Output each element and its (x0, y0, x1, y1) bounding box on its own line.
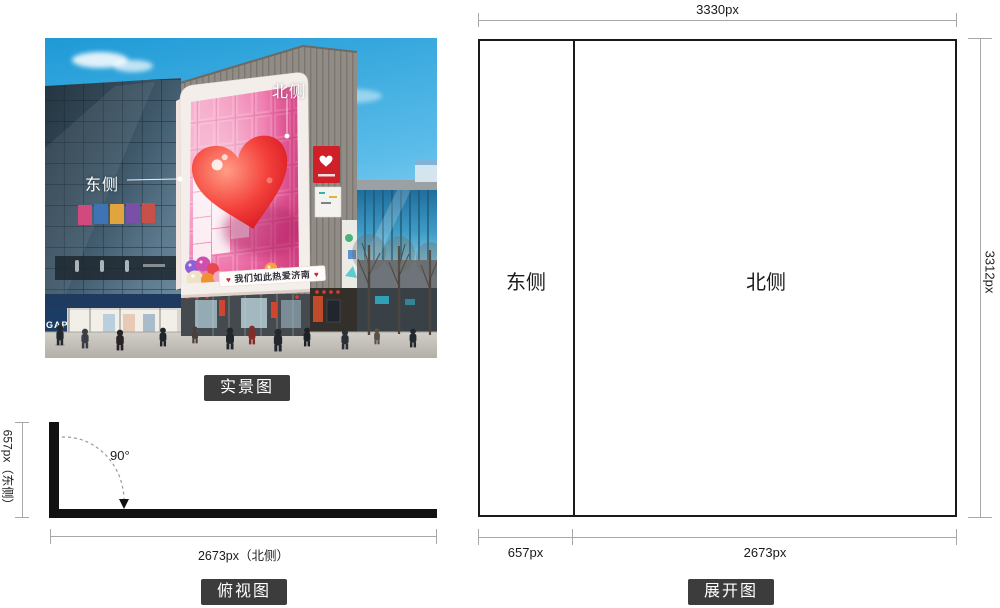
dim-tick (15, 422, 29, 423)
heart-icon: ♥ (226, 275, 232, 284)
dim-tick (956, 13, 957, 27)
unfold-east-label: 东侧 (478, 266, 574, 295)
dim-tick (968, 38, 992, 39)
heart-icon: ♥ (314, 270, 320, 279)
unfold-bottom-left-dim-label: 657px (478, 545, 573, 560)
arc-arrowhead (119, 499, 129, 509)
photo-caption: 实景图 (204, 375, 290, 401)
unfold-north-label: 北侧 (575, 266, 957, 295)
photo-east-label: 东侧 (85, 171, 119, 195)
dim-tick (50, 529, 51, 544)
topview-left-dim-line (22, 422, 23, 518)
dim-tick (436, 529, 437, 544)
unfold-top-dim-line (478, 20, 957, 21)
unfold-caption: 展开图 (688, 579, 774, 605)
tower-storefront (310, 288, 357, 334)
unfold-right-dim-line (980, 39, 981, 517)
topview-bottom-dim-label: 2673px（北侧） (50, 545, 437, 564)
glass-posters (78, 203, 155, 225)
tower-small-signs (315, 187, 341, 217)
dim-tick (956, 529, 957, 545)
north-pointer-dot (285, 134, 290, 139)
spec-sheet: GAP (0, 0, 1000, 608)
mannequin-band (55, 256, 181, 280)
shop-fascia (45, 294, 181, 308)
mall-storefront (181, 294, 310, 336)
topview-bottom-dim-line (50, 536, 437, 537)
unfold-right-dim-label: 3312px (983, 251, 998, 294)
unfold-top-dim-label: 3330px (478, 2, 957, 17)
angle-label: 90° (110, 448, 130, 463)
east-glass-building: GAP (45, 78, 181, 340)
dim-tick (15, 517, 29, 518)
dim-tick (478, 529, 479, 545)
unfold-bottom-right-dim-label: 2673px (573, 545, 957, 560)
dim-tick (572, 529, 573, 545)
dim-tick (478, 13, 479, 27)
angle-arc (55, 430, 140, 515)
topview-left-dim-label: 657px（东侧） (0, 430, 17, 511)
east-pointer-dot (178, 177, 183, 182)
site-photo: GAP (45, 38, 437, 358)
dim-tick (968, 517, 992, 518)
topview-caption: 俯视图 (201, 579, 287, 605)
photo-north-label: 北侧 (272, 78, 306, 102)
photo-scene: GAP (45, 38, 437, 358)
unfold-bottom-dim-line (478, 537, 957, 538)
tower-red-sign (313, 146, 340, 183)
